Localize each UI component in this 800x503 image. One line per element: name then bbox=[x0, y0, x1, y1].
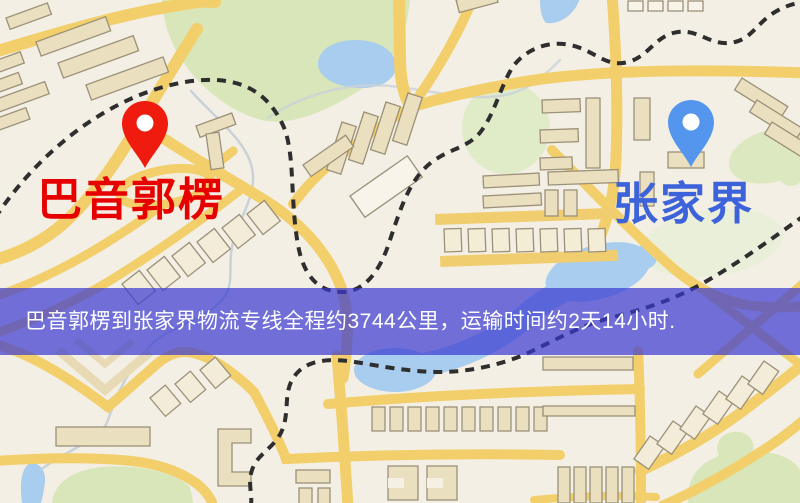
route-info-banner: 巴音郭楞到张家界物流专线全程约3744公里，运输时间约2天14小时. bbox=[0, 288, 800, 355]
origin-label: 巴音郭楞 bbox=[37, 177, 225, 222]
logistics-route-map: 巴音郭楞到张家界物流专线全程约3744公里，运输时间约2天14小时. 巴音郭楞 … bbox=[0, 0, 800, 503]
destination-pin-icon[interactable] bbox=[667, 99, 715, 169]
destination-label: 张家界 bbox=[613, 181, 754, 226]
origin-pin-icon[interactable] bbox=[121, 100, 169, 170]
map-background-art bbox=[0, 0, 800, 503]
route-info-text: 巴音郭楞到张家界物流专线全程约3744公里，运输时间约2天14小时. bbox=[0, 311, 676, 332]
